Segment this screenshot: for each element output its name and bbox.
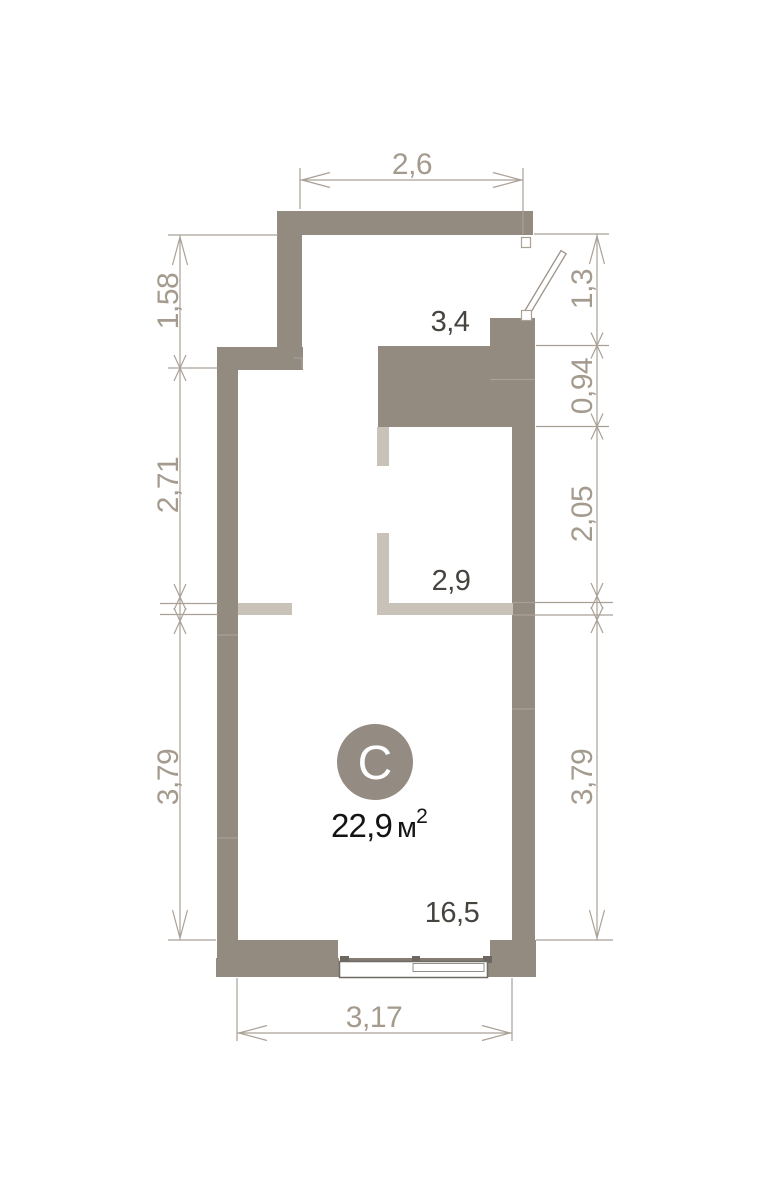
- wall-bottom-right: [490, 940, 536, 961]
- area-value: 22,9: [331, 807, 392, 844]
- partition-stub-left: [238, 603, 292, 615]
- dim-label-left-3: 3,79: [152, 749, 185, 805]
- door-leaf: [524, 251, 566, 315]
- dim-label-right-4: 3,79: [566, 749, 599, 805]
- floorplan-drawing: 2,6 3,17 1,58 2,71 3,79 1,3 0,94 2,05 3,…: [0, 0, 760, 1200]
- area-superscript: 2: [416, 805, 427, 828]
- dim-label-top: 2,6: [392, 148, 432, 181]
- dim-label-left-1: 1,58: [152, 273, 185, 329]
- wall-bottom-left: [217, 940, 338, 961]
- dim-label-right-1: 1,3: [566, 269, 599, 309]
- door-hinge-bottom: [522, 311, 532, 321]
- wall-right: [512, 380, 535, 977]
- area-label: 22,9м2: [331, 805, 427, 844]
- wall-entry-pier: [490, 318, 535, 380]
- label-kitchen-width: 3,4: [431, 306, 470, 338]
- window-pane-right: [413, 964, 484, 972]
- partitions-group: [238, 427, 513, 615]
- area-unit: м: [397, 812, 416, 844]
- dimension-left-group: 1,58 2,71 3,79: [152, 235, 278, 940]
- dim-label-left-2: 2,71: [152, 457, 185, 513]
- label-alcove-width: 2,9: [432, 565, 471, 597]
- dim-label-bottom: 3,17: [346, 1001, 402, 1034]
- wall-left-upper: [277, 211, 302, 370]
- wall-left-step: [217, 347, 303, 370]
- room-badge-letter: C: [358, 737, 393, 790]
- wall-bottom-band-right: [488, 958, 536, 977]
- wall-top: [277, 211, 533, 235]
- floorplan-canvas: 2,6 3,17 1,58 2,71 3,79 1,3 0,94 2,05 3,…: [0, 0, 760, 1200]
- label-main-room-area: 16,5: [425, 897, 479, 929]
- partition-vertical-lower: [377, 533, 389, 615]
- partition-horizontal: [377, 603, 513, 615]
- dimension-bottom-group: 3,17: [237, 978, 512, 1041]
- dim-label-right-2: 0,94: [566, 358, 599, 414]
- walls-group: [216, 211, 536, 977]
- window-group: [340, 956, 493, 978]
- dim-label-right-3: 2,05: [566, 486, 599, 542]
- door-group: [522, 238, 567, 321]
- door-hinge-top: [522, 238, 531, 248]
- wall-bottom-band-left: [216, 958, 339, 977]
- partition-vertical-upper: [377, 427, 389, 466]
- wall-left: [217, 370, 238, 977]
- room-label-group: C 22,9м2: [331, 724, 427, 844]
